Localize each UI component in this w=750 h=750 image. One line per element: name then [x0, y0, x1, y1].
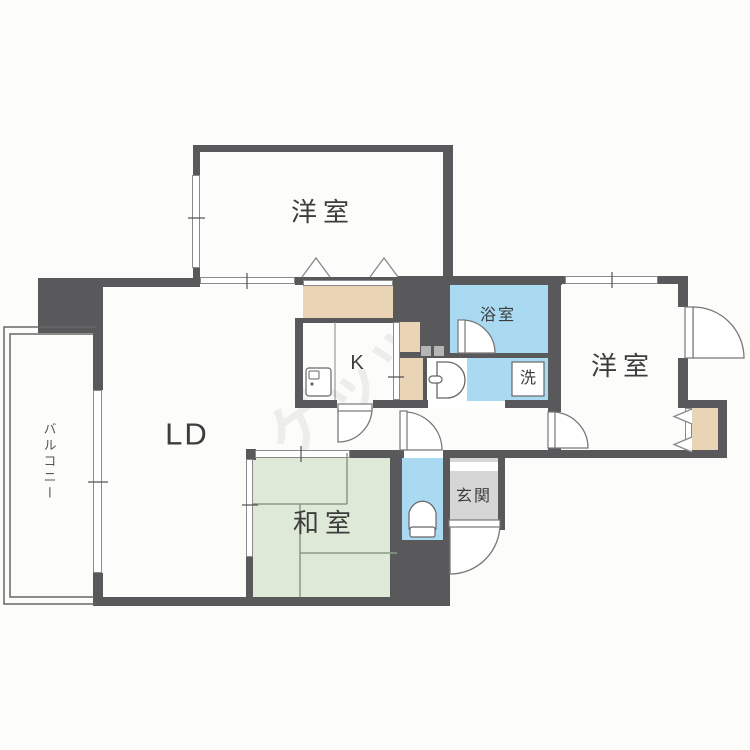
door-arc-entrance [450, 524, 500, 574]
room-label-bathroom: 浴室 [480, 308, 516, 324]
door-arc-western-room-right [552, 412, 588, 448]
door-leaf [685, 307, 693, 358]
floor-plan: ゲッツ [0, 0, 750, 750]
room-label-entrance: 玄関 [456, 489, 492, 505]
door-leaf [400, 411, 407, 450]
bifold-door-icon [302, 258, 330, 277]
room-label-balcony: バルコニー [40, 422, 59, 502]
door-arc-toilet [404, 412, 442, 450]
room-label-laundry: 洗 [520, 371, 536, 387]
room-label-japanese-room: 和室 [293, 510, 357, 536]
washbasin-icon [429, 362, 465, 398]
door-leaf [548, 412, 555, 448]
door-arc-right-exterior [693, 307, 744, 358]
room-label-kitchen: K [350, 353, 363, 373]
door-leaf [458, 320, 465, 353]
room-label-western-room-top: 洋室 [291, 199, 355, 225]
kitchen-sink-icon [306, 368, 331, 396]
bifold-door-icon [674, 409, 692, 424]
toilet-icon [409, 501, 436, 537]
room-label-living-dining: LD [165, 419, 209, 450]
bifold-door-icon [370, 258, 398, 277]
door-arc-ld [338, 408, 372, 442]
door-leaf [338, 404, 372, 411]
door-leaf-entrance [449, 520, 500, 527]
door-arc-bathroom [462, 320, 495, 353]
bifold-door-icon [674, 437, 692, 452]
room-label-western-room-right: 洋室 [591, 353, 655, 379]
